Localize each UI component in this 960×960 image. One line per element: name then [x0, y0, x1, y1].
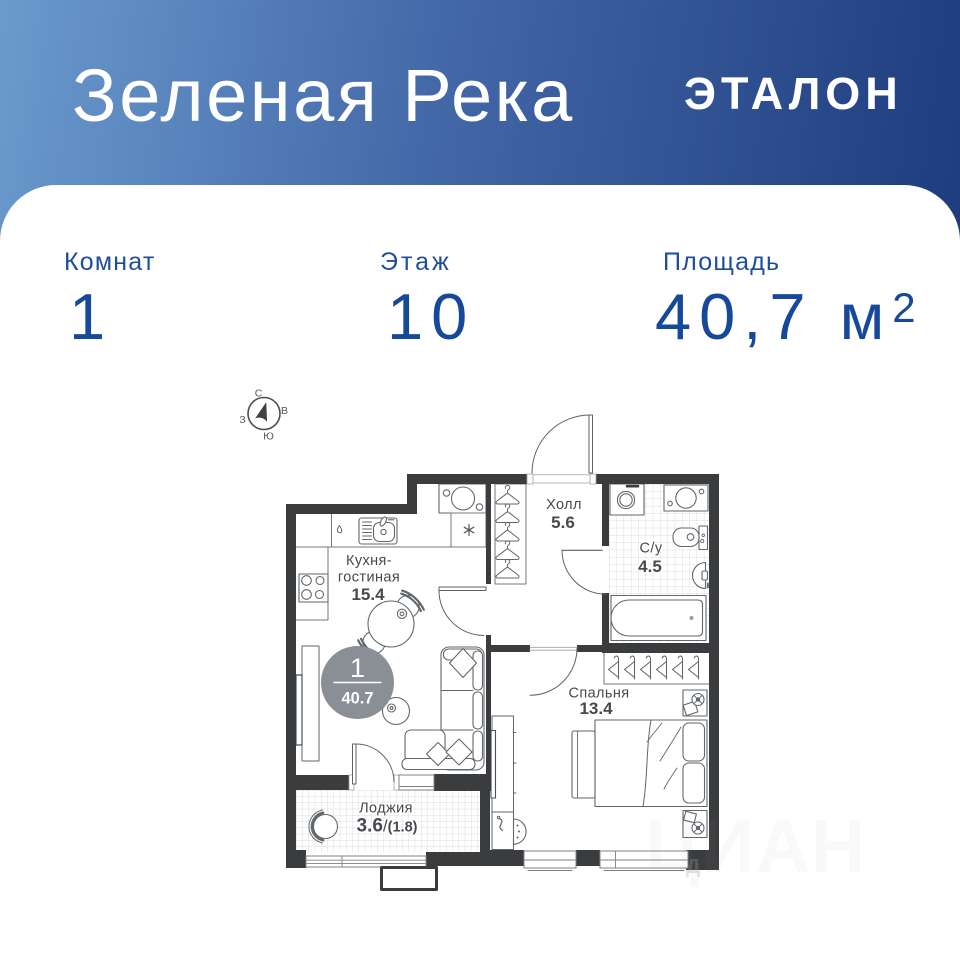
svg-text:Ю: Ю [263, 431, 274, 443]
svg-text:В: В [281, 405, 288, 417]
svg-text:13.4: 13.4 [579, 699, 613, 718]
svg-text:Лоджия: Лоджия [359, 801, 413, 817]
svg-text:3.6/(1.8): 3.6/(1.8) [357, 816, 418, 837]
svg-text:1: 1 [350, 653, 365, 683]
svg-text:С: С [255, 388, 263, 400]
svg-text:Кухня-: Кухня- [346, 553, 392, 569]
svg-text:15.4: 15.4 [351, 585, 385, 604]
svg-text:Холл: Холл [546, 497, 582, 513]
svg-text:ЦИАН: ЦИАН [645, 804, 866, 888]
svg-text:5.6: 5.6 [551, 513, 575, 532]
svg-text:гостиная: гостиная [338, 570, 400, 586]
svg-text:З: З [239, 414, 245, 426]
svg-text:40.7: 40.7 [341, 690, 373, 708]
svg-text:Д: Д [686, 856, 700, 878]
svg-text:4.5: 4.5 [638, 557, 662, 576]
svg-text:С/у: С/у [640, 541, 663, 557]
